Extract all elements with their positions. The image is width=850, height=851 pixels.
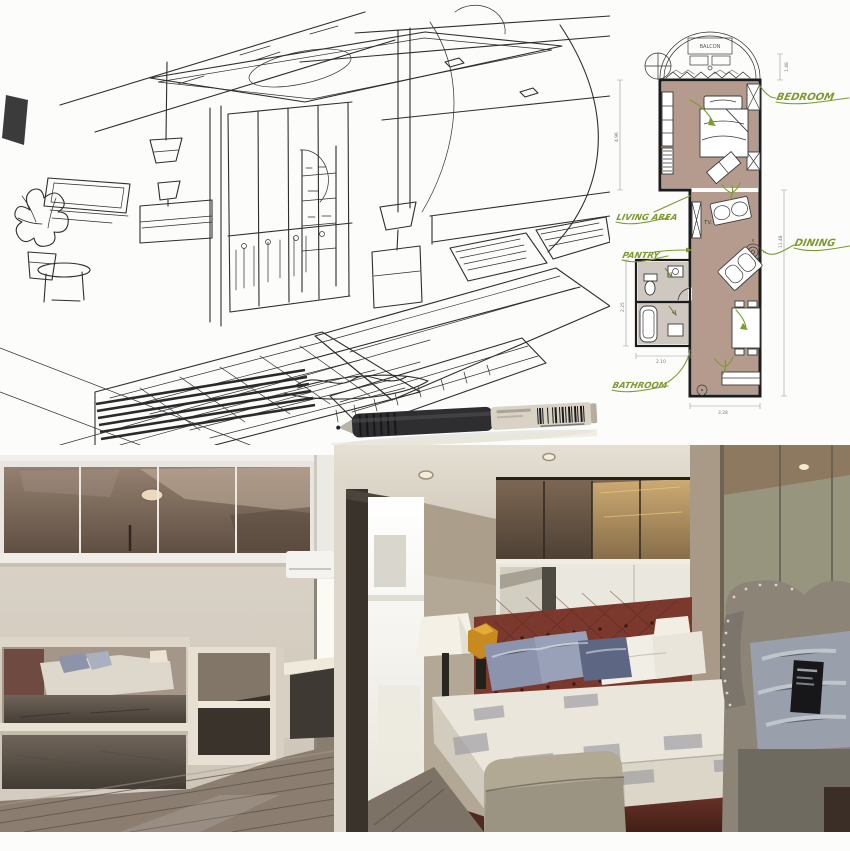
reflected-lamp (150, 650, 168, 663)
bed-plan (700, 96, 748, 157)
label-dining: DINING (793, 238, 836, 249)
dim-bath-w: 2.25 (620, 302, 626, 312)
toilet (645, 281, 655, 295)
pen-end-cap (590, 403, 597, 423)
ottoman (484, 751, 626, 832)
spotlight (419, 471, 433, 479)
balcony: BALCON (660, 32, 760, 78)
console-plan (722, 372, 760, 385)
balcony-rail-zigzag (666, 72, 750, 78)
bed (300, 192, 610, 428)
ceiling-lines (60, 5, 610, 132)
curtain-curves (398, 22, 598, 252)
upper-cabinets (0, 461, 316, 567)
dining-table-plan (732, 301, 760, 355)
rug-dark-band (96, 370, 315, 439)
photo-dressing-area (0, 455, 334, 832)
armchair (721, 580, 850, 832)
desk (284, 657, 334, 739)
floor-plan: BALCON (610, 0, 850, 445)
window-view (374, 535, 406, 587)
dim-balcony: 1.48 (784, 62, 790, 72)
marker-pen (330, 401, 598, 445)
tv-label: TV. (703, 220, 712, 226)
label-living: LIVING AREA (615, 213, 678, 223)
collage-canvas: BALCON (0, 0, 850, 851)
spotlight (543, 454, 555, 461)
gold-reflection (592, 479, 690, 563)
window-frame (346, 489, 368, 832)
counter-top (0, 723, 190, 731)
dim-bath-l: 2.10 (656, 359, 666, 365)
photo-bedroom (334, 445, 850, 832)
mirror-sideboard (0, 637, 190, 801)
shelf-board (198, 701, 270, 708)
label-pantry: PANTRY (621, 251, 661, 261)
wardrobe (662, 92, 673, 146)
nightstand (372, 202, 422, 308)
bronze-upper-cabinets (496, 477, 692, 564)
dim-bedroom: 4.96 (614, 132, 620, 142)
ceiling-vent (520, 88, 538, 97)
plant (15, 189, 90, 302)
mirror-reflection-bed (4, 649, 186, 725)
dim-unit-w: 3.28 (718, 410, 728, 416)
window-wall (210, 102, 352, 326)
pen-tip (336, 426, 340, 430)
column-symbol (645, 53, 671, 79)
white-pillow (652, 631, 706, 679)
dresser (140, 181, 212, 243)
pillow-tag (790, 660, 824, 714)
wall-sconce (2, 95, 28, 145)
bathtub (640, 306, 657, 342)
lamp-stand (442, 653, 449, 699)
chair-shadow (824, 787, 850, 832)
balcony-label: BALCON (700, 44, 721, 50)
lower-mirror (2, 735, 186, 789)
desk-shadow (290, 668, 334, 739)
dim-living: 11.48 (778, 235, 784, 248)
picture-frame (44, 178, 130, 223)
label-bathroom: BATHROOM (611, 381, 668, 391)
air-conditioner (286, 551, 334, 578)
recessed-light-reflection (141, 489, 163, 501)
pen-tip-cone (338, 419, 354, 435)
open-shelf-unit (188, 647, 284, 765)
reflected-spotlight (799, 464, 809, 470)
perspective-sketch (0, 0, 610, 445)
